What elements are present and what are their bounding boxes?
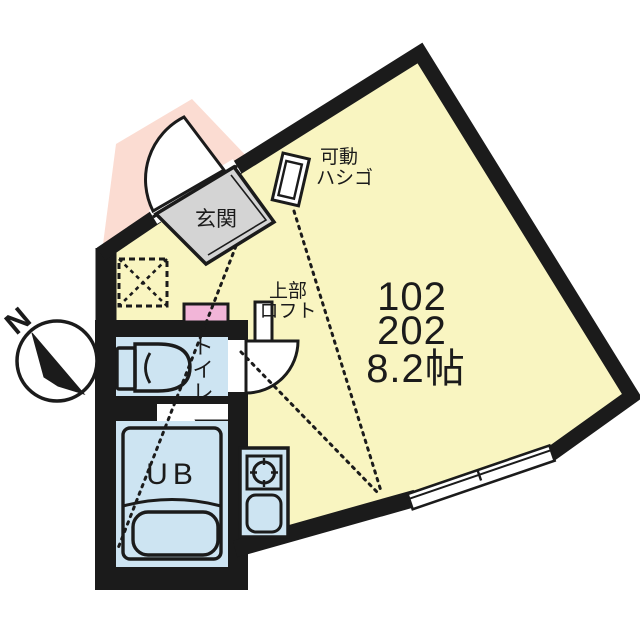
ladder-label-line1: 可動 (320, 146, 358, 168)
toilet-label-char2: イ (193, 359, 214, 382)
loft-label-line2: ロフト (259, 301, 316, 322)
kitchen-unit (240, 448, 288, 537)
bath-label: UB (146, 458, 198, 491)
ladder-label-line2: ハシゴ (316, 167, 373, 189)
floor-plan-canvas: N 玄関 可動 ハシゴ 上部 ロフト 102 202 8.2帖 ト イ レ UB (0, 0, 640, 640)
toilet-label: ト イ レ (193, 336, 214, 404)
toilet-label-char1: ト (193, 336, 214, 359)
counter-box (184, 304, 228, 322)
entrance-label: 玄関 (195, 208, 237, 231)
loft-label-line1: 上部 (269, 280, 307, 302)
room-area-label: 8.2帖 (366, 347, 466, 391)
compass: N (0, 300, 97, 401)
toilet-label-char3: レ (193, 381, 214, 404)
floor-plan: N 玄関 可動 ハシゴ 上部 ロフト 102 202 8.2帖 ト イ レ UB (0, 0, 640, 640)
